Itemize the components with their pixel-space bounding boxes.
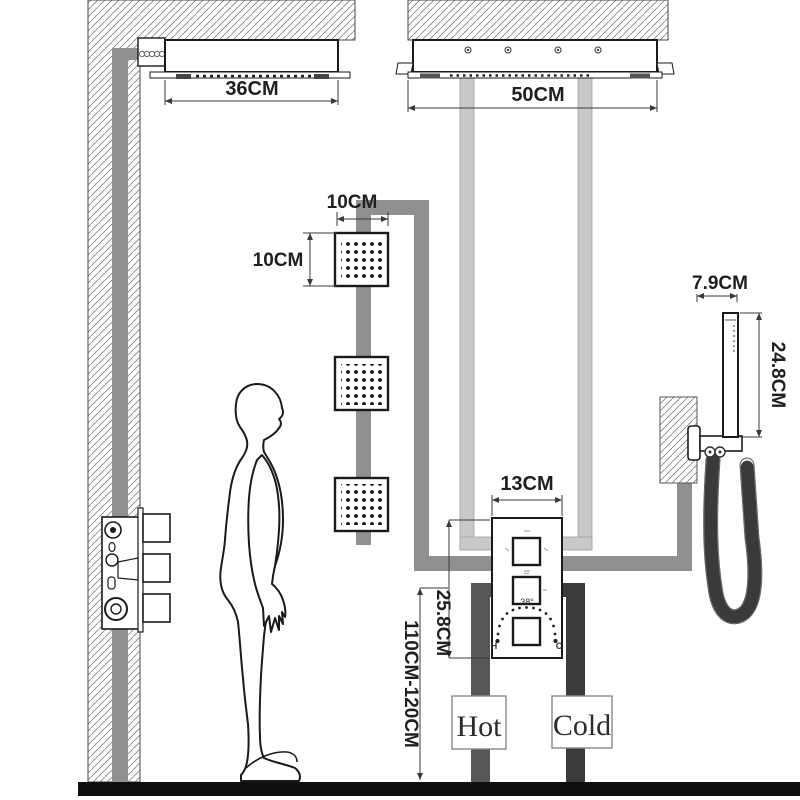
dimension-50cm: 50CM bbox=[408, 80, 657, 112]
cold-marker: C bbox=[556, 641, 563, 651]
rain-shower-head-36cm bbox=[138, 38, 350, 79]
shower-valve-front: 38° H C bbox=[491, 518, 563, 658]
hot-label-box: Hot bbox=[452, 696, 506, 749]
shower-installation-diagram: 38° H C Hot Cold bbox=[0, 0, 800, 800]
floor bbox=[78, 782, 800, 796]
valve-knob-top bbox=[513, 538, 540, 565]
left-wall-and-ceiling bbox=[88, 0, 355, 782]
hand-shower-wand bbox=[723, 313, 738, 437]
body-jet-height-label: 10CM bbox=[253, 250, 304, 271]
dimension-hand-shower-height: 24.8CM bbox=[740, 313, 788, 437]
rain-head-width-label: 36CM bbox=[225, 78, 278, 100]
dimension-hand-shower-width: 7.9CM bbox=[692, 273, 748, 302]
body-jet-1 bbox=[335, 233, 388, 286]
cold-label: Cold bbox=[553, 709, 611, 742]
right-ceiling bbox=[408, 0, 668, 40]
body-jet-width-label: 10CM bbox=[327, 192, 378, 213]
valve-width-label: 13CM bbox=[500, 473, 553, 495]
hand-shower-bracket bbox=[688, 426, 700, 460]
dimension-36cm: 36CM bbox=[165, 78, 338, 105]
cold-supply-pipe bbox=[562, 583, 585, 782]
cold-label-box: Cold bbox=[552, 696, 612, 748]
ceiling-head-width-label: 50CM bbox=[511, 84, 564, 106]
dimension-jet-height: 10CM bbox=[253, 233, 337, 286]
ceiling-shower-head-50cm bbox=[396, 40, 674, 79]
diagram-canvas: 38° H C Hot Cold bbox=[0, 0, 800, 800]
body-jet-3 bbox=[335, 478, 388, 531]
hot-marker: H bbox=[491, 641, 498, 651]
temperature-setting-label: 38° bbox=[520, 597, 534, 607]
jet-supply-pipe bbox=[356, 200, 692, 571]
hot-label: Hot bbox=[457, 710, 503, 743]
valve-height-label: 25.8CM bbox=[432, 590, 453, 657]
valve-rough-in-side-view bbox=[102, 508, 170, 632]
body-jet-2 bbox=[335, 357, 388, 410]
dimension-valve-width: 13CM bbox=[492, 473, 562, 516]
hand-shower-height-label: 24.8CM bbox=[767, 342, 788, 409]
shower-hose bbox=[711, 460, 755, 617]
person-silhouette bbox=[220, 384, 300, 781]
threaded-nipple bbox=[139, 51, 164, 56]
hand-shower bbox=[688, 313, 755, 617]
hot-supply-pipe bbox=[471, 583, 492, 782]
valve-knob-temperature bbox=[513, 618, 540, 645]
hand-shower-width-label: 7.9CM bbox=[692, 273, 748, 294]
install-height-label: 110CM-120CM bbox=[400, 620, 421, 748]
